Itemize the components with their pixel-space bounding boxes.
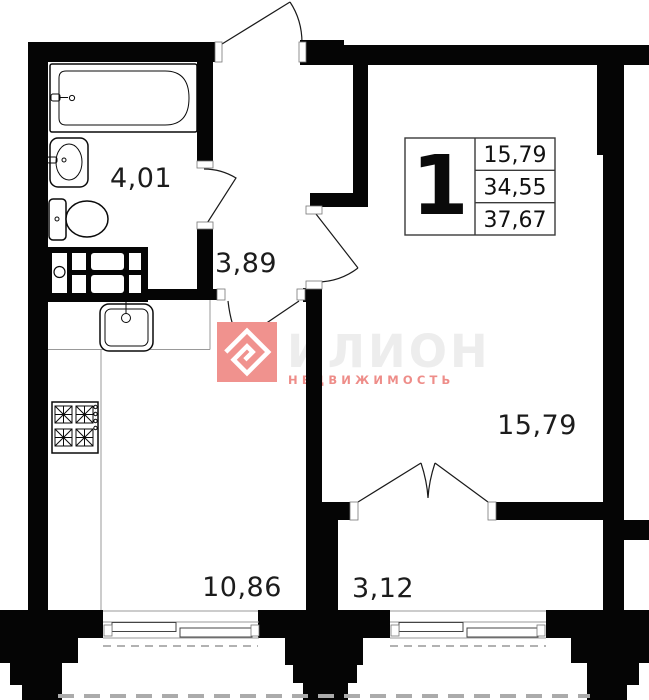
- unit-number: 1: [411, 139, 468, 234]
- floor-plan: ИЛИОН НЕДВИЖИМОСТЬ: [0, 0, 649, 700]
- bathroom-area-label: 4,01: [110, 163, 172, 194]
- bathtub: [50, 64, 197, 132]
- toilet: [49, 199, 108, 240]
- info-area-no-balcony: 34,55: [484, 176, 547, 201]
- floor-plan-page: ИЛИОН НЕДВИЖИМОСТЬ: [0, 0, 649, 700]
- utility-shaft: [47, 247, 148, 302]
- info-living-area: 15,79: [484, 143, 547, 168]
- balcony-area-label: 3,12: [352, 573, 414, 604]
- washbasin: [47, 138, 88, 187]
- kitchen-area-label: 10,86: [202, 572, 282, 603]
- stove: [52, 402, 98, 453]
- kitchen-sink: [100, 301, 153, 351]
- info-total-area: 37,67: [484, 208, 547, 233]
- watermark: ИЛИОН НЕДВИЖИМОСТЬ: [217, 322, 491, 387]
- living-room-area-label: 15,79: [497, 410, 577, 441]
- unit-info-box: 1 15,79 34,55 37,67: [405, 138, 555, 235]
- hallway-area-label: 3,89: [215, 248, 277, 279]
